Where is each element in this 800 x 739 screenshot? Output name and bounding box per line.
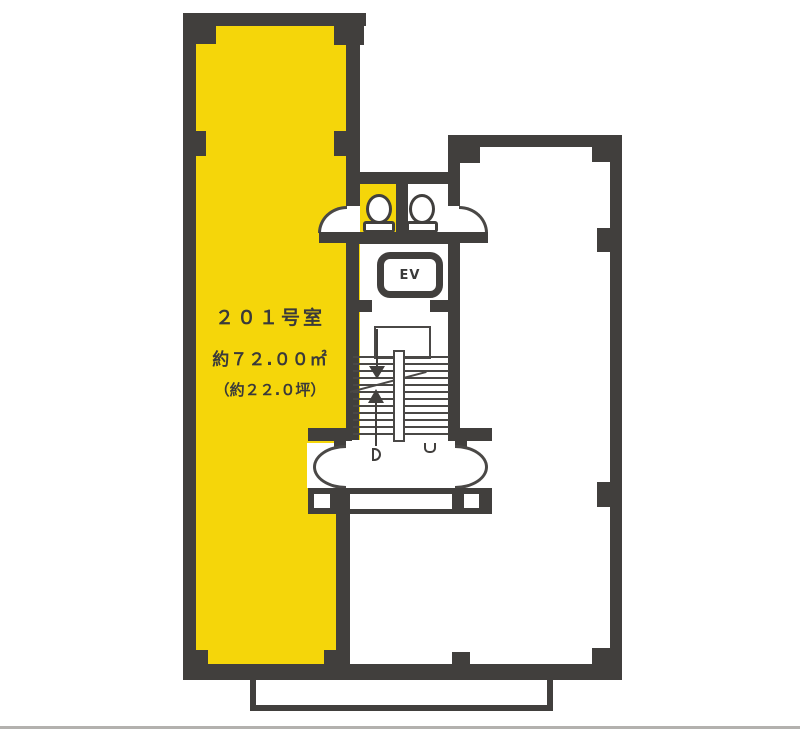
column xyxy=(324,650,336,664)
wall-stair-east xyxy=(448,312,460,428)
stair-up-arrow-head-icon xyxy=(368,389,384,403)
column xyxy=(334,131,360,156)
wall-south xyxy=(183,664,622,680)
toilet-icon xyxy=(366,194,392,224)
stair-down-arrow-head-icon xyxy=(369,366,385,379)
door-arc-icon xyxy=(455,445,488,467)
door-arc-icon xyxy=(459,206,488,233)
wall-core-north xyxy=(346,172,460,184)
column xyxy=(597,228,610,252)
floorplan-canvas: EV ２０１号室 約７２.００㎡ （約 xyxy=(0,0,800,739)
column xyxy=(452,652,470,664)
column xyxy=(592,147,610,162)
scan-edge-line xyxy=(0,726,800,729)
stair-break-line xyxy=(350,371,427,393)
wall-ev-south xyxy=(430,300,460,312)
room-201-label: ２０１号室 xyxy=(190,303,350,330)
toilet-icon xyxy=(409,194,435,224)
toilet-icon xyxy=(406,221,438,233)
stair-up-arrow xyxy=(375,403,377,446)
door-arc-icon xyxy=(455,467,488,489)
corridor-floor xyxy=(346,440,456,489)
elevator-box: EV xyxy=(377,252,443,298)
column xyxy=(334,20,364,45)
column xyxy=(196,650,208,664)
door-opening xyxy=(346,206,360,232)
room-201-highlight xyxy=(183,13,360,668)
wall-east xyxy=(610,135,622,680)
room-201-area-sqm: 約７２.００㎡ xyxy=(190,345,350,370)
window-inset xyxy=(350,494,452,509)
column xyxy=(460,147,480,163)
column xyxy=(592,648,610,664)
door-leaf xyxy=(319,232,347,243)
wall-rightroom-north xyxy=(448,135,622,147)
window-inset xyxy=(314,494,330,508)
elevator-label: EV xyxy=(400,268,421,283)
room-201-area-tsubo: （約２２.０坪） xyxy=(190,379,350,400)
toilet-icon xyxy=(363,221,395,233)
stair-down-arrow xyxy=(376,329,378,367)
door-leaf xyxy=(459,232,488,243)
lower-hall-floor xyxy=(350,514,610,664)
wall-room201-east-lower xyxy=(336,514,350,666)
wall-rightroom-west-upper xyxy=(448,147,460,206)
stair-direction-marker-icon xyxy=(424,443,436,453)
column xyxy=(196,26,216,44)
balcony xyxy=(250,680,553,711)
window-inset xyxy=(464,494,479,508)
column xyxy=(597,482,610,507)
column xyxy=(183,131,206,156)
stair-divider xyxy=(393,350,405,442)
wall-toilet-south xyxy=(346,232,460,244)
